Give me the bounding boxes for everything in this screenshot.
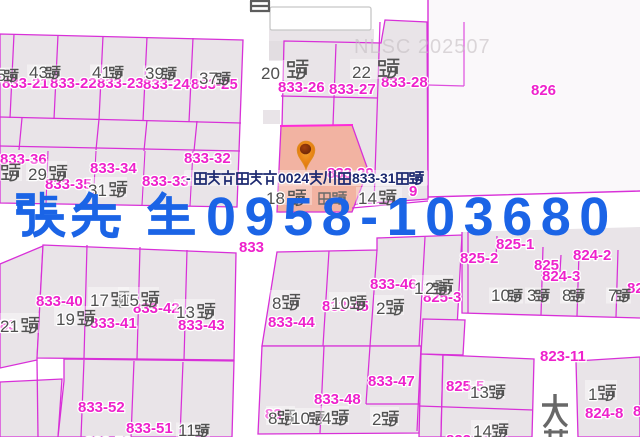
svg-text:10: 10: [331, 294, 350, 313]
svg-text:833-27: 833-27: [329, 81, 376, 98]
svg-text:824-2: 824-2: [573, 247, 611, 264]
svg-text:833-51: 833-51: [126, 420, 173, 437]
svg-text:8: 8: [562, 286, 571, 305]
svg-text:0024: 0024: [278, 170, 309, 186]
svg-text:8: 8: [633, 403, 640, 420]
svg-text:11: 11: [178, 421, 196, 437]
svg-text:833-41: 833-41: [90, 315, 137, 332]
svg-text:43: 43: [29, 63, 48, 82]
svg-text:10: 10: [291, 409, 310, 428]
svg-text:2: 2: [376, 299, 385, 318]
svg-text:37: 37: [199, 69, 218, 88]
svg-text:45: 45: [0, 66, 6, 85]
svg-text:4: 4: [322, 409, 331, 428]
svg-text:13: 13: [176, 303, 195, 322]
svg-text:7: 7: [608, 286, 617, 305]
svg-text:22: 22: [352, 63, 371, 82]
svg-text:-: -: [186, 170, 191, 186]
svg-text:824-3: 824-3: [542, 268, 580, 285]
svg-text:2: 2: [372, 410, 381, 429]
svg-text:8: 8: [268, 409, 277, 428]
svg-text:41: 41: [92, 63, 111, 82]
svg-text:824-8: 824-8: [585, 405, 623, 422]
svg-text:29: 29: [28, 165, 47, 184]
svg-text:833-46: 833-46: [370, 276, 417, 293]
svg-text:833-33: 833-33: [142, 173, 189, 190]
svg-text:19: 19: [56, 310, 75, 329]
svg-text:833-31: 833-31: [352, 170, 396, 186]
svg-text:833-26: 833-26: [278, 79, 325, 96]
svg-text:10: 10: [491, 286, 510, 305]
svg-text:833-32: 833-32: [184, 150, 231, 167]
svg-text:13: 13: [470, 383, 489, 402]
svg-text:39: 39: [145, 64, 164, 83]
svg-text:2: 2: [425, 279, 434, 298]
svg-text:833-34: 833-34: [90, 160, 137, 177]
svg-text:3: 3: [527, 286, 536, 305]
svg-text:17: 17: [90, 291, 109, 310]
svg-text:826: 826: [531, 82, 556, 99]
svg-text:833-52: 833-52: [78, 399, 125, 416]
svg-text:8: 8: [272, 294, 281, 313]
svg-text:14: 14: [473, 422, 492, 437]
svg-text:15: 15: [120, 291, 139, 310]
svg-text:21: 21: [0, 317, 19, 336]
svg-text:833-44: 833-44: [268, 314, 315, 331]
svg-text:0958-103680: 0958-103680: [206, 187, 618, 247]
svg-text:1: 1: [588, 385, 597, 404]
svg-text:823-11: 823-11: [540, 348, 586, 365]
svg-text:833-48: 833-48: [314, 391, 361, 408]
svg-text:833-47: 833-47: [368, 373, 415, 390]
svg-text:825-2: 825-2: [460, 250, 498, 267]
svg-text:20: 20: [261, 64, 280, 83]
svg-text:NLSC 202507: NLSC 202507: [354, 36, 491, 58]
